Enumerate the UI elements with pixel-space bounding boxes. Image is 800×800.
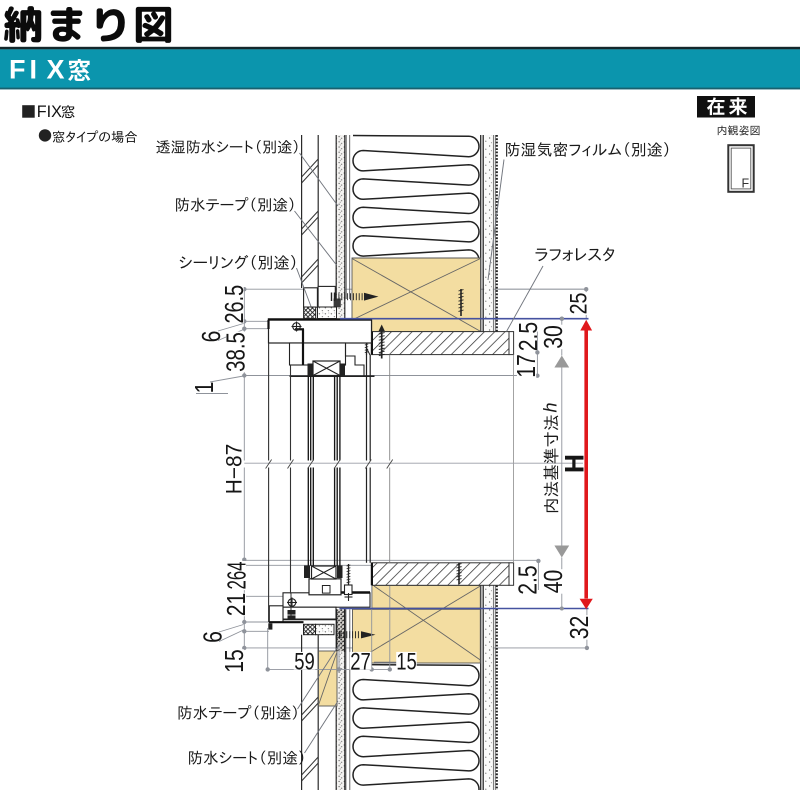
- svg-text:h: h: [541, 402, 561, 412]
- svg-text:2.5: 2.5: [514, 565, 542, 594]
- svg-text:59: 59: [294, 648, 315, 675]
- svg-text:264: 264: [222, 561, 252, 589]
- svg-text:32: 32: [565, 616, 593, 640]
- svg-text:15: 15: [396, 648, 417, 675]
- svg-text:21: 21: [222, 593, 250, 617]
- svg-text:H−87: H−87: [222, 444, 247, 495]
- svg-text:15: 15: [220, 649, 248, 673]
- svg-text:27: 27: [350, 648, 371, 675]
- svg-text:40: 40: [539, 570, 567, 594]
- svg-text:38.5: 38.5: [221, 332, 250, 372]
- svg-text:1: 1: [190, 382, 218, 394]
- svg-text:17: 17: [512, 354, 540, 378]
- svg-text:2.5: 2.5: [514, 322, 542, 351]
- svg-text:X: X: [47, 55, 65, 85]
- svg-text:25: 25: [564, 293, 592, 315]
- svg-text:6: 6: [199, 631, 227, 643]
- svg-text:30: 30: [539, 325, 567, 349]
- svg-text:F: F: [742, 177, 750, 191]
- svg-text:26.5: 26.5: [220, 285, 249, 324]
- svg-text:I: I: [30, 55, 38, 85]
- svg-text:FIX: FIX: [37, 103, 62, 121]
- svg-text:F: F: [9, 55, 26, 85]
